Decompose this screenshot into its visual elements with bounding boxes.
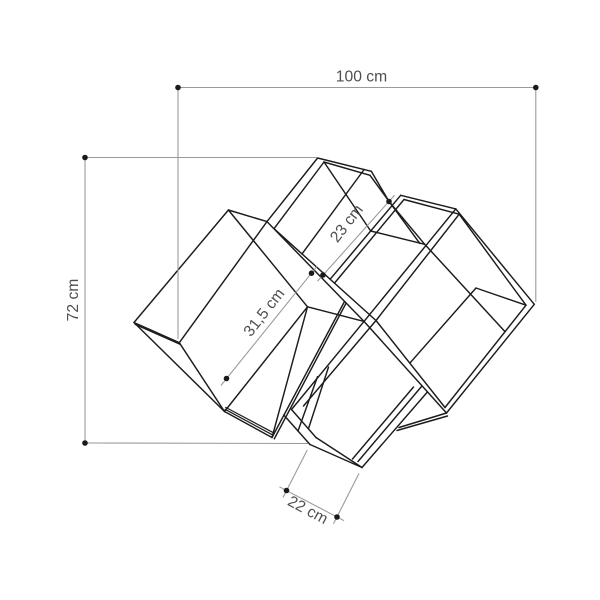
svg-text:100 cm: 100 cm [336,69,387,86]
svg-text:23 cm: 23 cm [327,202,367,246]
svg-text:22 cm: 22 cm [285,493,331,528]
svg-text:72 cm: 72 cm [65,279,82,322]
